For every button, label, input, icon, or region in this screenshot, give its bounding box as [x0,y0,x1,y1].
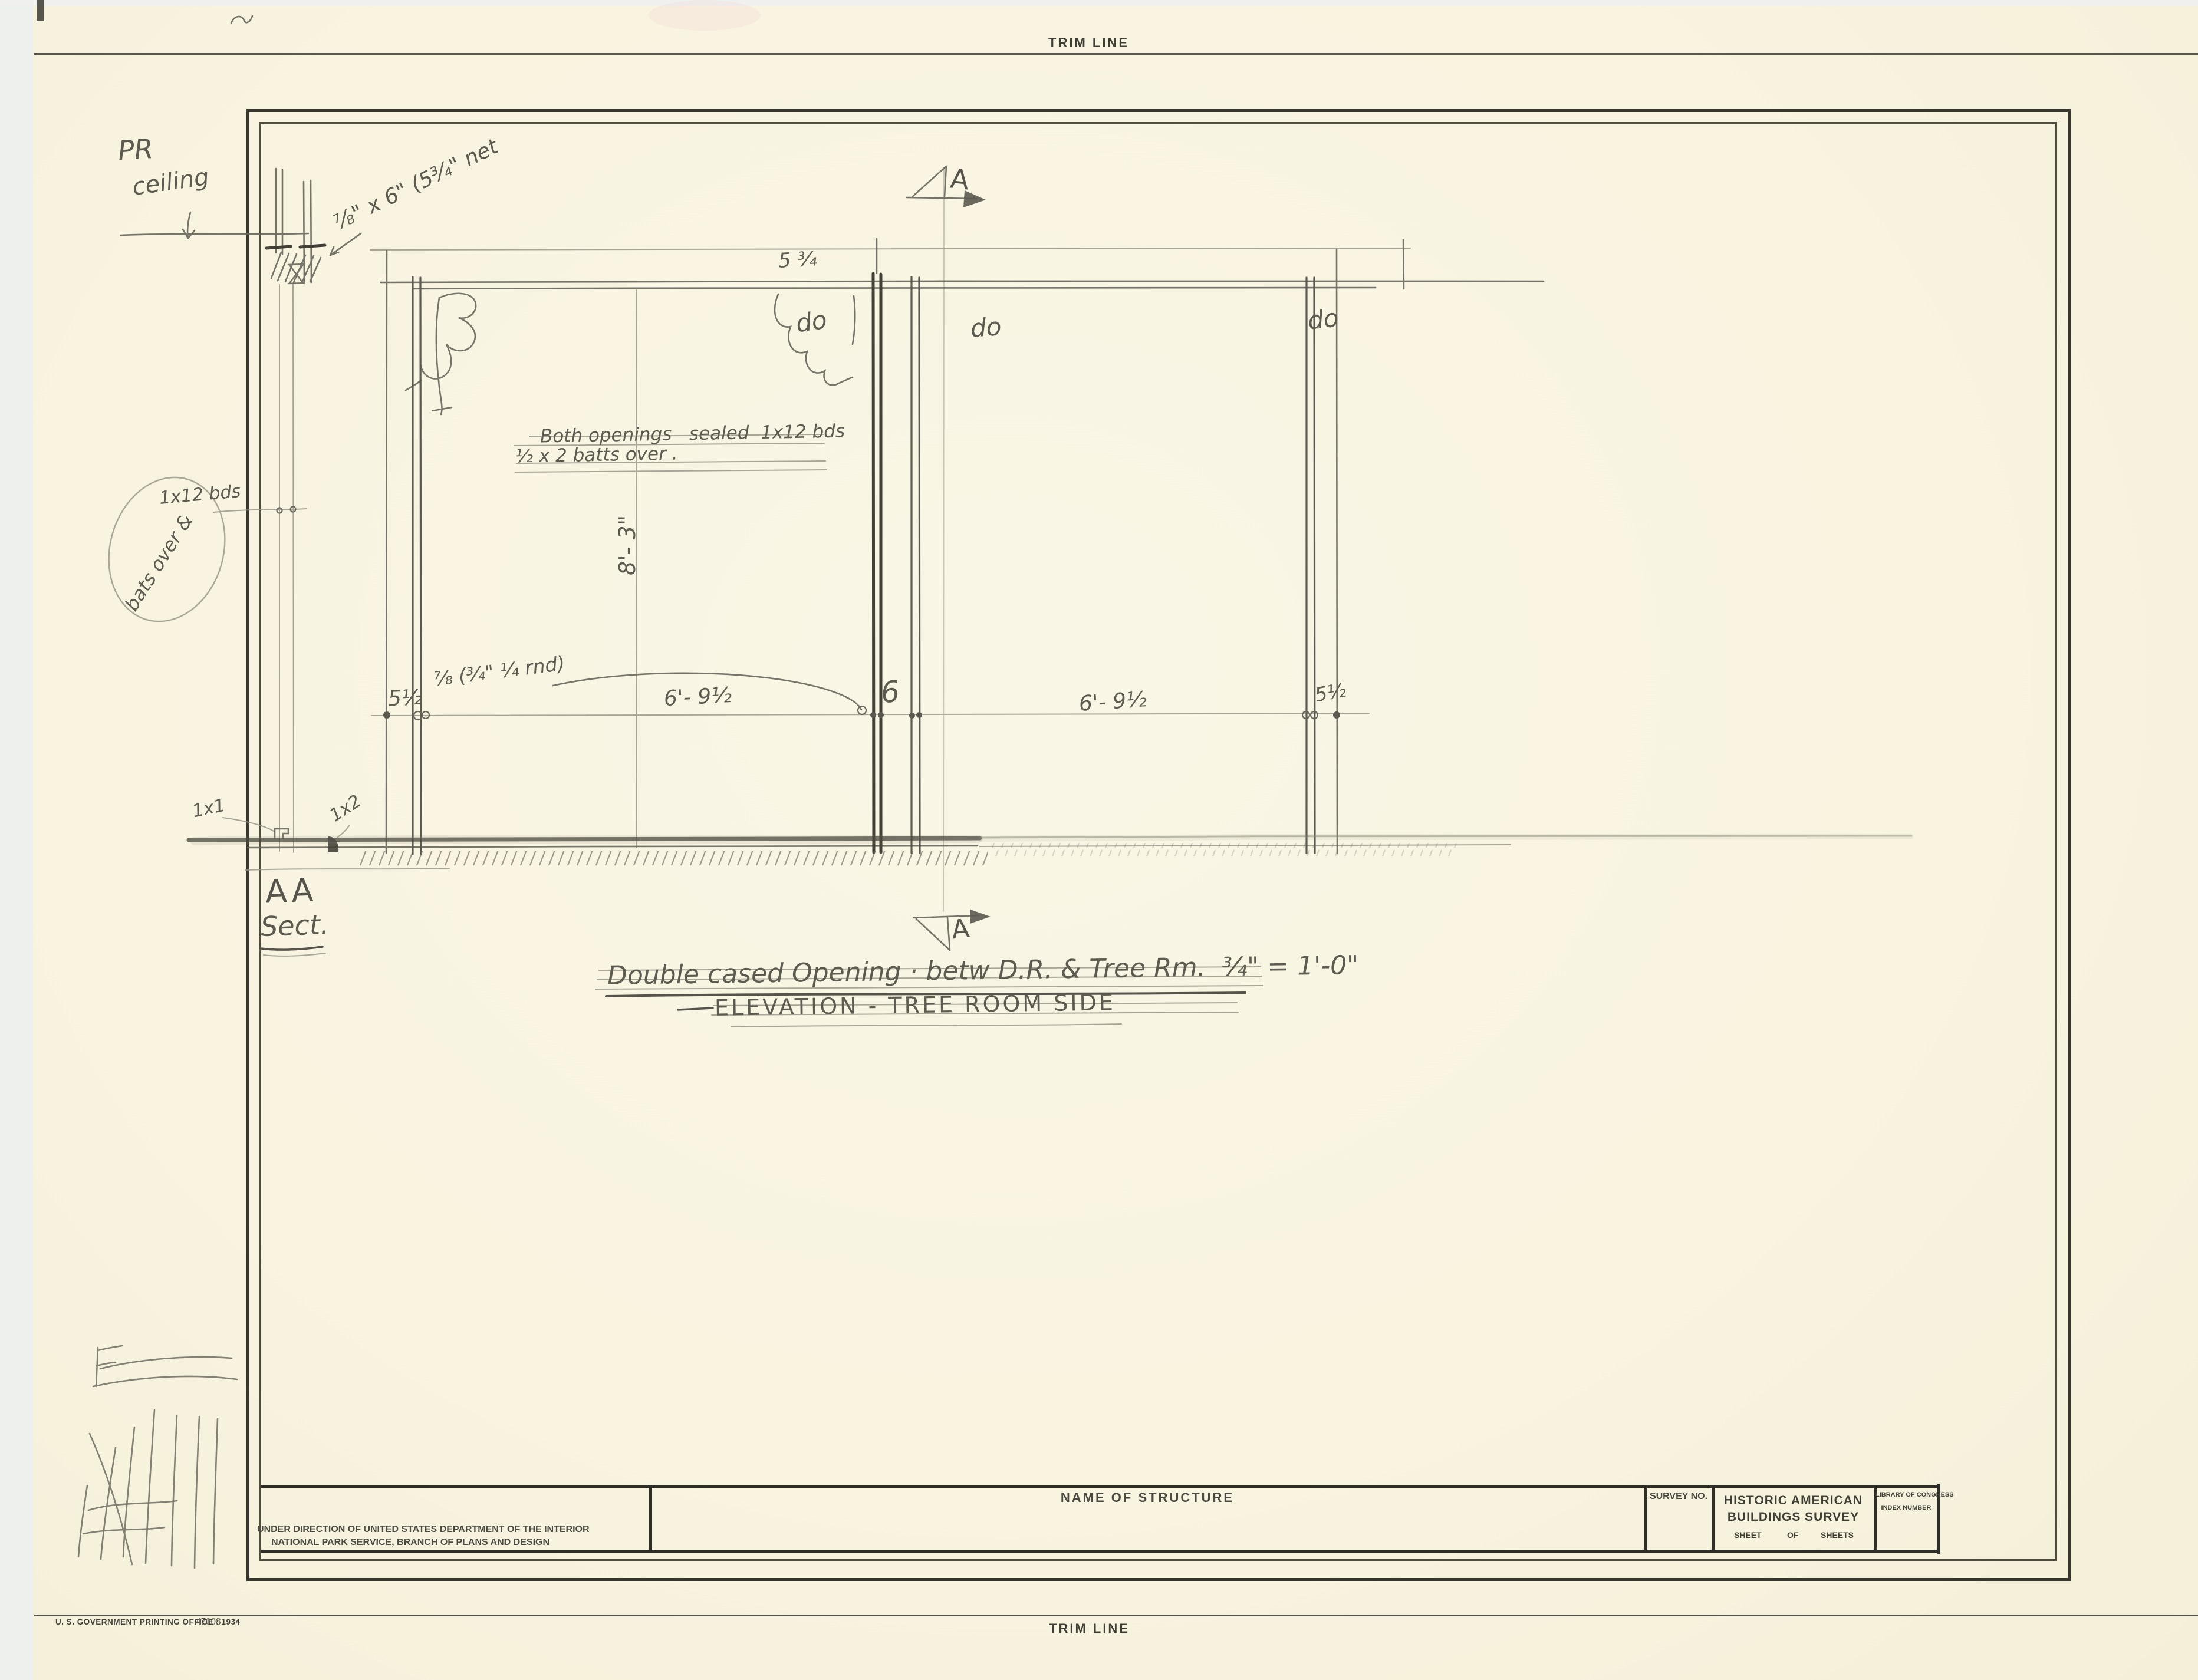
stray-tilde-mark [231,16,252,23]
right-opening-dimension: 6'- 9½ [1078,689,1147,716]
floor-hatching-right [991,843,1456,856]
right-casing-dimension: 5½ [1313,680,1347,706]
left-casing-dimension: 5½ [387,687,423,711]
floor-smudges [195,836,1911,841]
ditto-mark-3: do [1307,305,1340,334]
casing-verticals [413,277,1315,854]
pink-scan-smudge [649,0,761,31]
floor-hatching-left [360,851,988,867]
height-dimension: 8'- 3" [616,498,640,592]
pr-note: PR [117,134,154,165]
section-arrow-icon [963,190,991,924]
left-opening-dimension: 6'- 9½ [663,684,732,710]
pencil-sketch-layer [0,0,2198,1680]
head-width-dimension: 5 ¾ [778,249,817,272]
doodle-scribbles [78,1346,237,1568]
section-label-bottom: A [950,915,971,944]
openings-note-line-1: Both openings sealed 1x12 bds [540,421,845,446]
mullion-dimension: 6 [880,676,901,709]
dark-pencil-lines [189,245,980,852]
scanned-habs-sheet: { "sheet": { "trim_top": "TRIM LINE", "t… [0,0,2198,1680]
section-detail-word: Sect. [260,910,329,941]
section-label-top: A [949,164,970,194]
ditto-mark-1: do [794,307,828,337]
drawing-caption-line-2: ELEVATION - TREE ROOM SIDE [715,991,1116,1020]
ditto-mark-2: do [970,314,1002,342]
section-detail-label: AA [265,874,317,909]
scroll-ornament-sketch [421,294,476,379]
openings-note-line-2: ½ x 2 batts over . [515,444,678,466]
